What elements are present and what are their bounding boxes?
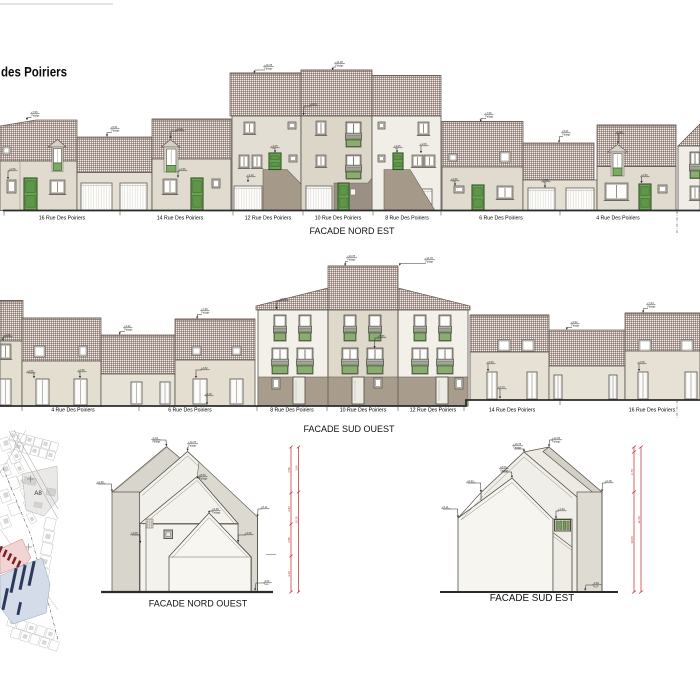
svg-text:Faitage: Faitage [201, 311, 210, 314]
svg-text:+5.98: +5.98 [616, 130, 623, 134]
svg-text:+2.56: +2.56 [9, 167, 16, 171]
svg-text:+7.34: +7.34 [647, 301, 654, 305]
svg-text:+1.90: +1.90 [558, 507, 565, 511]
svg-text:+3.68: +3.68 [4, 333, 11, 337]
svg-text:Faitage: Faitage [188, 444, 197, 447]
svg-text:NGF: NGF [593, 585, 599, 588]
svg-text:+2.56: +2.56 [451, 177, 458, 181]
svg-text:+7.56: +7.56 [31, 110, 38, 114]
svg-text:2.04: 2.04 [295, 465, 299, 471]
svg-text:+0.73: +0.73 [498, 385, 505, 389]
svg-text:8 Rue Des Poiriers: 8 Rue Des Poiriers [385, 216, 429, 222]
svg-text:16 Rue Des Poiriers: 16 Rue Des Poiriers [629, 408, 676, 414]
svg-text:Faitage: Faitage [571, 324, 580, 327]
svg-text:+5.55: +5.55 [378, 334, 385, 338]
svg-text:4 Rue Des Poiriers: 4 Rue Des Poiriers [596, 216, 640, 222]
svg-text:+4.92: +4.92 [124, 324, 131, 328]
svg-text:Faitage: Faitage [264, 67, 273, 70]
svg-text:+5.61: +5.61 [562, 129, 569, 133]
svg-text:+10.78: +10.78 [347, 254, 356, 258]
svg-text:10 Rue Des Poiriers: 10 Rue Des Poiriers [340, 408, 387, 414]
svg-text:+1.56: +1.56 [179, 167, 186, 171]
svg-text:+11.78: +11.78 [425, 256, 433, 260]
svg-text:6 Rue Des Poiriers: 6 Rue Des Poiriers [479, 216, 523, 222]
svg-text:+5.98: +5.98 [176, 127, 183, 131]
svg-text:Faitage: Faitage [647, 305, 656, 308]
svg-text:Faitage: Faitage [347, 258, 356, 261]
svg-text:+8.06: +8.06 [199, 473, 206, 477]
svg-text:14 Rue Des Poiriers: 14 Rue Des Poiriers [489, 408, 536, 414]
svg-text:+3.68: +3.68 [245, 531, 252, 535]
svg-text:+8.06: +8.06 [500, 465, 507, 469]
svg-text:2.82: 2.82 [287, 506, 291, 512]
svg-text:+2.56: +2.56 [638, 360, 645, 364]
svg-text:-0.60: -0.60 [593, 581, 599, 585]
svg-text:6 Rue Des Poiriers: 6 Rue Des Poiriers [168, 408, 212, 414]
svg-text:+2.56: +2.56 [641, 173, 648, 177]
svg-text:+0.28: +0.28 [205, 392, 212, 396]
svg-text:Faitage: Faitage [485, 115, 494, 118]
svg-text:FACADE SUD OUEST: FACADE SUD OUEST [303, 424, 395, 434]
svg-text:+3.05: +3.05 [271, 144, 278, 148]
svg-text:12.69: 12.69 [637, 516, 641, 524]
svg-text:+0.28: +0.28 [605, 479, 612, 483]
svg-text:+3.05: +3.05 [394, 144, 401, 148]
svg-text:4 Rue Des Poiriers: 4 Rue Des Poiriers [51, 408, 95, 414]
svg-text:FACADE SUD EST: FACADE SUD EST [490, 593, 574, 604]
svg-text:+4.05: +4.05 [420, 142, 427, 146]
svg-text:+10.78: +10.78 [264, 63, 273, 67]
svg-text:Faitage: Faitage [152, 440, 161, 443]
svg-text:+2.82: +2.82 [201, 366, 208, 370]
svg-text:+10.78: +10.78 [188, 440, 197, 444]
svg-text:Faitage: Faitage [31, 114, 40, 117]
svg-text:8 Rue Des Poiriers: 8 Rue Des Poiriers [270, 408, 314, 414]
svg-text:+5.11: +5.11 [261, 505, 268, 509]
svg-text:A8: A8 [34, 490, 42, 497]
svg-text:+2.56: +2.56 [487, 360, 494, 364]
svg-text:Faitage: Faitage [335, 64, 344, 67]
svg-text:Faitage: Faitage [425, 260, 434, 263]
svg-text:+11.28: +11.28 [335, 60, 343, 64]
svg-text:+5.11: +5.11 [442, 505, 449, 509]
svg-text:+0.28: +0.28 [97, 480, 104, 484]
svg-text:10 Rue Des Poiriers: 10 Rue Des Poiriers [315, 216, 362, 222]
svg-text:+1.10: +1.10 [247, 173, 254, 177]
svg-text:+5.61: +5.61 [111, 125, 118, 129]
svg-text:3.20: 3.20 [287, 571, 291, 577]
svg-text:Faitage: Faitage [552, 440, 561, 443]
svg-text:Faitage: Faitage [212, 511, 221, 514]
svg-text:Faitage: Faitage [562, 133, 571, 136]
svg-text:-2.04: -2.04 [152, 436, 158, 440]
svg-text:2.88: 2.88 [287, 537, 291, 543]
svg-text:2.76: 2.76 [630, 469, 634, 475]
svg-text:Faitage: Faitage [199, 477, 208, 480]
svg-text:FACADE NORD EST: FACADE NORD EST [309, 226, 395, 236]
svg-text:10.06: 10.06 [630, 536, 634, 544]
svg-text:FACADE NORD OUEST: FACADE NORD OUEST [149, 599, 248, 609]
svg-text:10.20: 10.20 [295, 516, 299, 523]
svg-text:+8.05: +8.05 [280, 297, 287, 301]
svg-text:2.56: 2.56 [287, 467, 291, 473]
svg-text:+3.68: +3.68 [131, 531, 138, 535]
svg-text:+2.50: +2.50 [542, 178, 549, 182]
svg-text:+9.05: +9.05 [310, 102, 317, 106]
svg-text:16 Rue Des Poiriers: 16 Rue Des Poiriers [39, 216, 86, 222]
svg-text:Faitage: Faitage [111, 129, 120, 132]
svg-text:+5.48: +5.48 [212, 507, 219, 511]
svg-text:12 Rue Des Poiriers: 12 Rue Des Poiriers [410, 408, 457, 414]
svg-text:+2.56: +2.56 [78, 368, 85, 372]
svg-text:12 Rue Des Poiriers: 12 Rue Des Poiriers [245, 216, 292, 222]
svg-text:des Poiriers: des Poiriers [1, 64, 67, 80]
svg-text:14 Rue Des Poiriers: 14 Rue Des Poiriers [157, 216, 204, 222]
svg-text:+7.56: +7.56 [485, 111, 492, 115]
svg-text:+4.92: +4.92 [571, 320, 578, 324]
svg-text:+6.24: +6.24 [467, 479, 474, 483]
svg-text:+12.09: +12.09 [552, 436, 561, 440]
svg-text:+10.78: +10.78 [513, 442, 522, 446]
svg-text:Faitage: Faitage [124, 328, 133, 331]
svg-text:+2.56: +2.56 [27, 369, 34, 373]
svg-text:+7.39: +7.39 [201, 307, 208, 311]
svg-text:NGF: NGF [264, 584, 269, 586]
